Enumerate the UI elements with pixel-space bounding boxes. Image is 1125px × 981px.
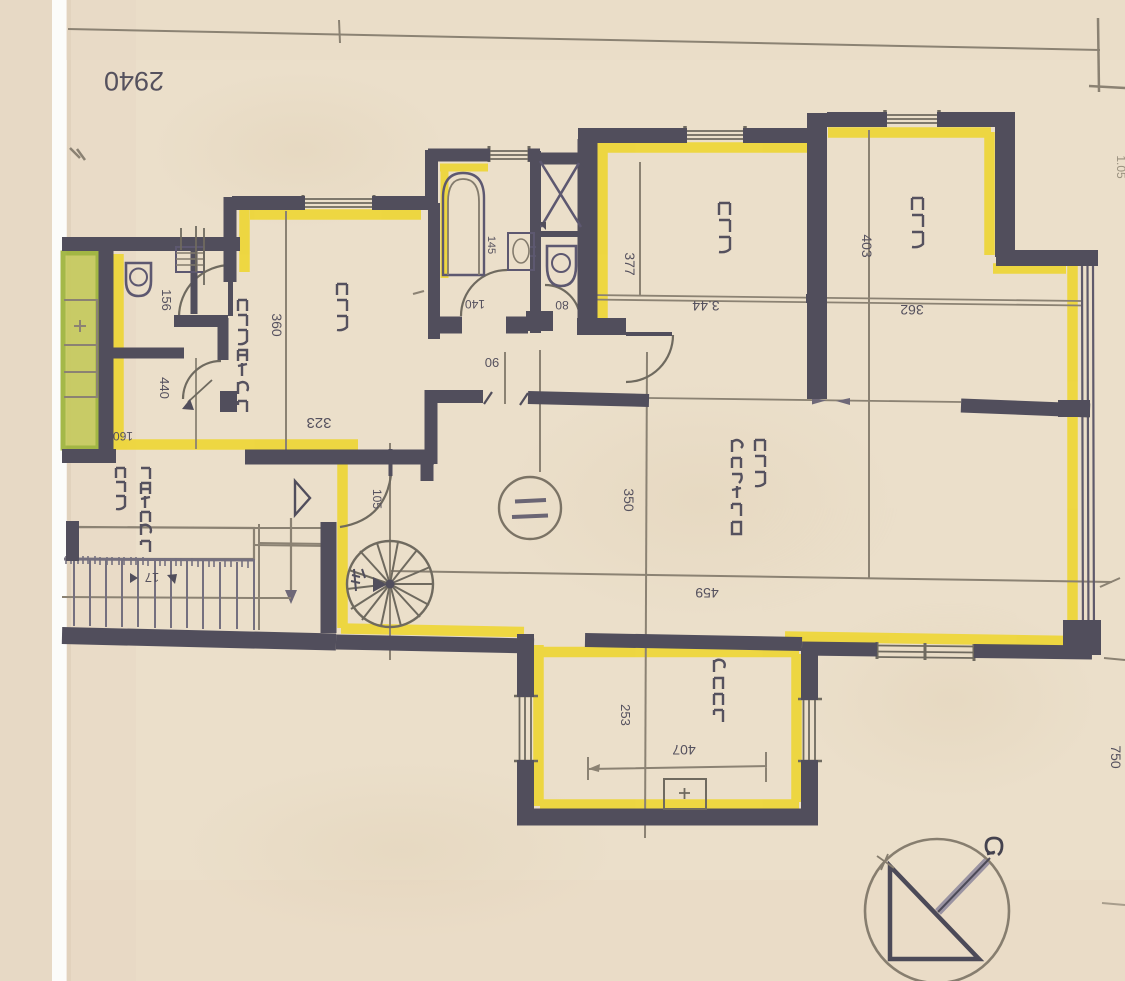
svg-text:253: 253	[618, 704, 633, 726]
svg-text:140: 140	[465, 297, 485, 311]
svg-text:362: 362	[900, 302, 924, 318]
svg-text:17: 17	[145, 570, 159, 585]
svg-text:323: 323	[306, 414, 331, 431]
svg-text:160: 160	[113, 429, 133, 443]
svg-text:459: 459	[695, 585, 719, 601]
svg-text:440: 440	[157, 377, 172, 399]
svg-text:377: 377	[622, 252, 638, 276]
svg-text:90: 90	[485, 355, 499, 370]
svg-text:1.05: 1.05	[1114, 155, 1125, 179]
svg-text:360: 360	[269, 313, 285, 337]
svg-text:156: 156	[159, 289, 174, 311]
svg-text:350: 350	[621, 488, 637, 512]
svg-text:145: 145	[485, 236, 497, 254]
svg-text:3.44: 3.44	[692, 298, 719, 314]
svg-text:80: 80	[555, 298, 569, 312]
svg-text:750: 750	[1108, 745, 1124, 769]
svg-text:403: 403	[859, 234, 875, 258]
svg-text:2940: 2940	[104, 66, 164, 96]
svg-text:105: 105	[370, 489, 384, 509]
svg-text:407: 407	[672, 742, 696, 758]
